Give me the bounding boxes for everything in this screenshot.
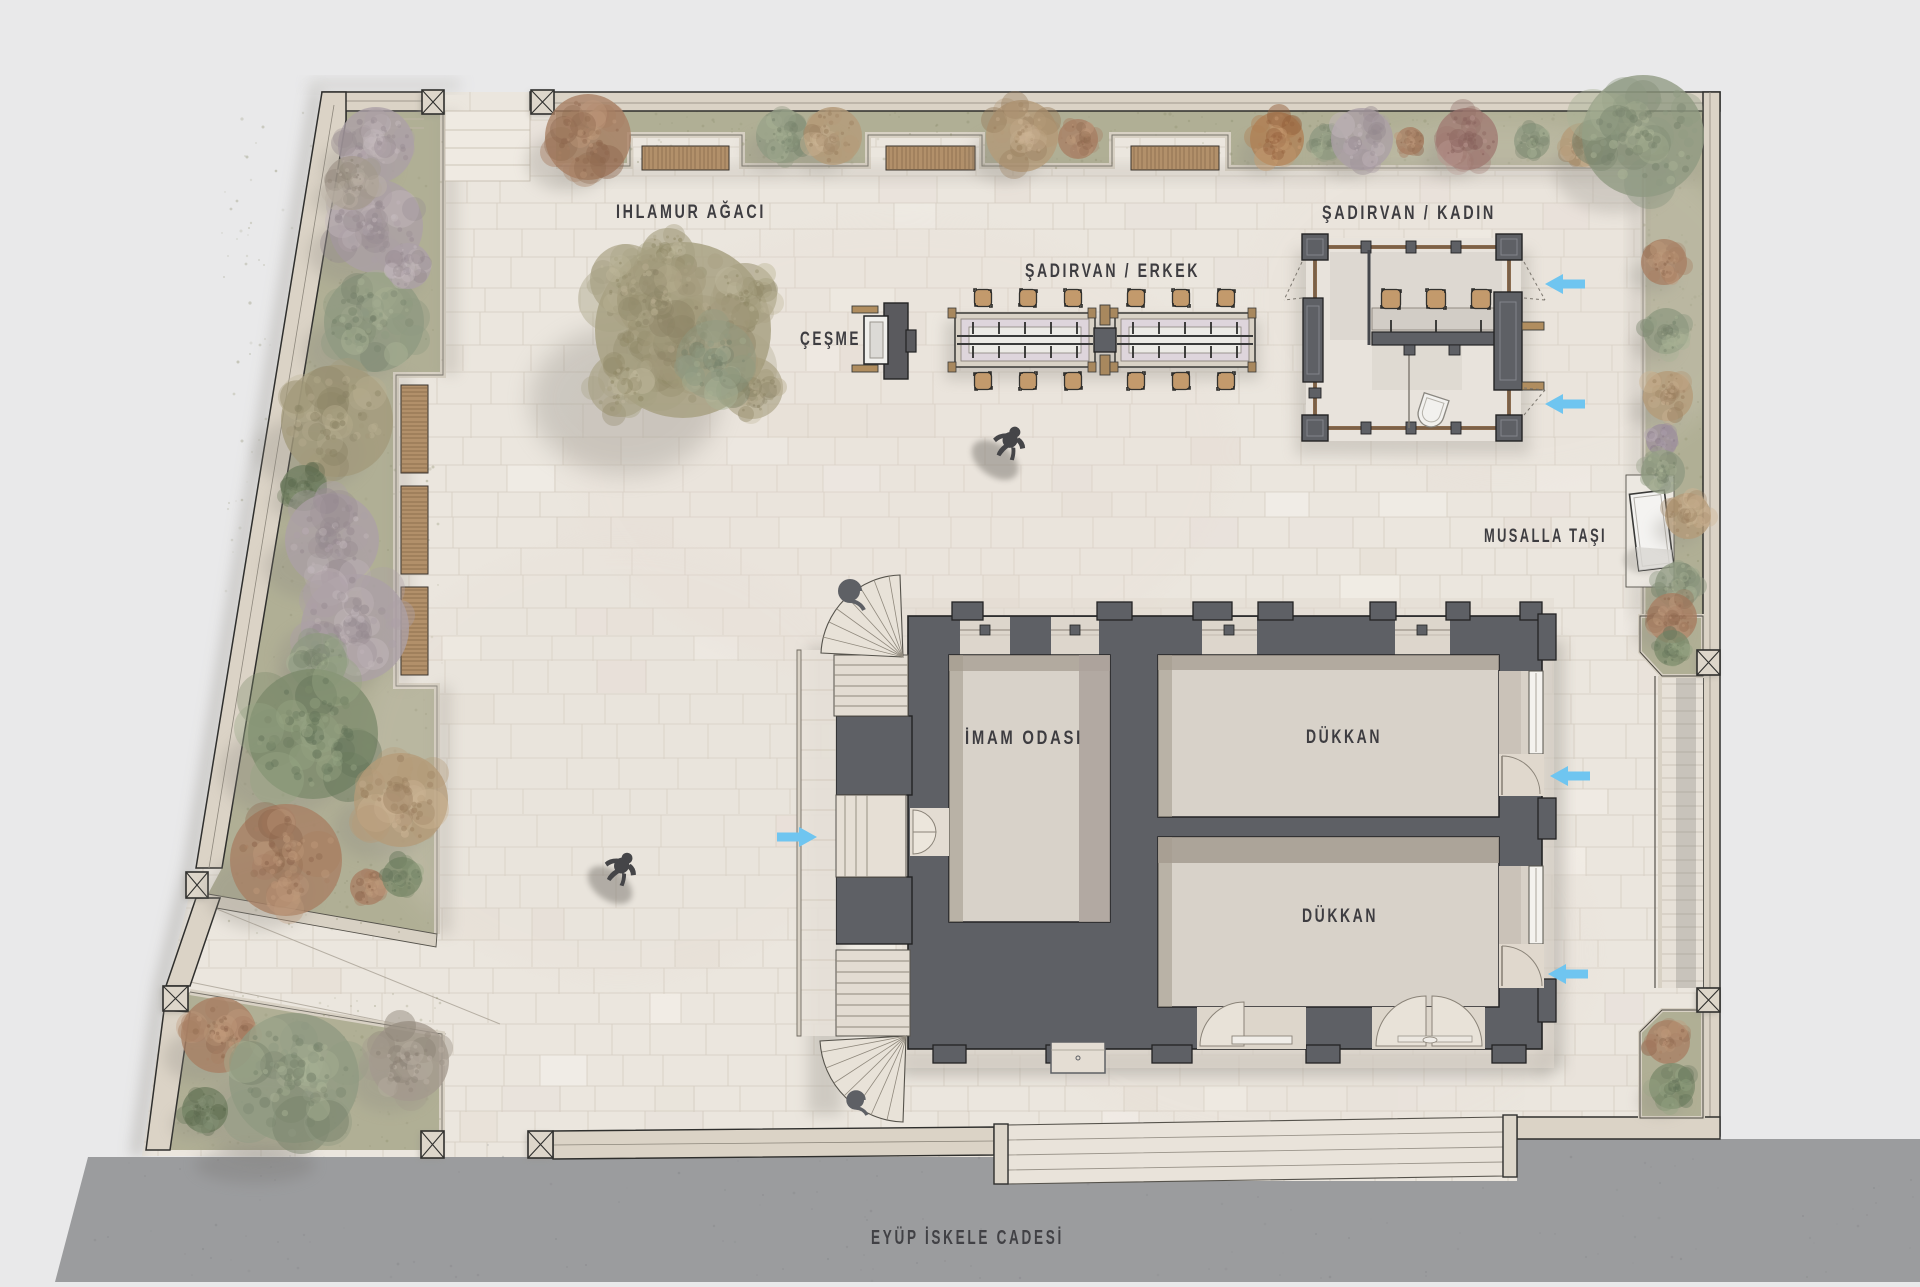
svg-text:ŞADIRVAN / KADIN: ŞADIRVAN / KADIN [1322, 203, 1496, 224]
svg-text:ÇEŞME: ÇEŞME [800, 329, 861, 350]
svg-text:ŞADIRVAN / ERKEK: ŞADIRVAN / ERKEK [1025, 261, 1200, 282]
svg-text:MUSALLA TAŞI: MUSALLA TAŞI [1484, 526, 1607, 547]
svg-text:DÜKKAN: DÜKKAN [1306, 727, 1382, 748]
svg-text:İMAM ODASI: İMAM ODASI [965, 728, 1083, 749]
svg-text:IHLAMUR AĞACI: IHLAMUR AĞACI [616, 201, 766, 223]
svg-text:DÜKKAN: DÜKKAN [1302, 906, 1378, 927]
svg-text:EYÜP İSKELE CADESİ: EYÜP İSKELE CADESİ [871, 1226, 1064, 1249]
